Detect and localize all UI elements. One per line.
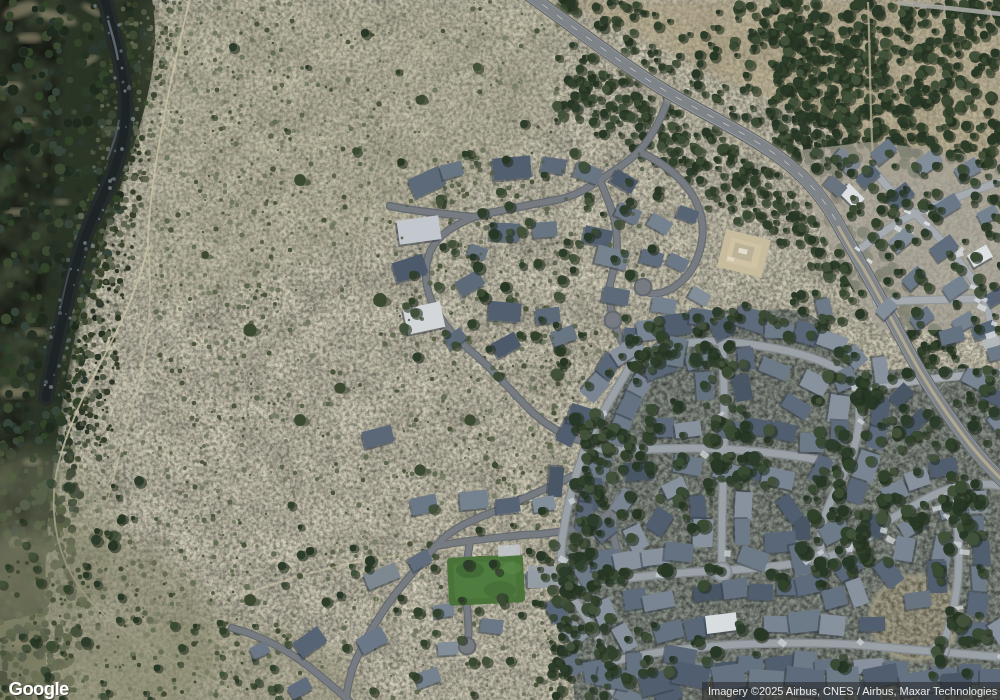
svg-text:Google: Google (9, 678, 69, 699)
svg-text:Imagery ©2025 Airbus, CNES / A: Imagery ©2025 Airbus, CNES / Airbus, Max… (708, 685, 998, 697)
